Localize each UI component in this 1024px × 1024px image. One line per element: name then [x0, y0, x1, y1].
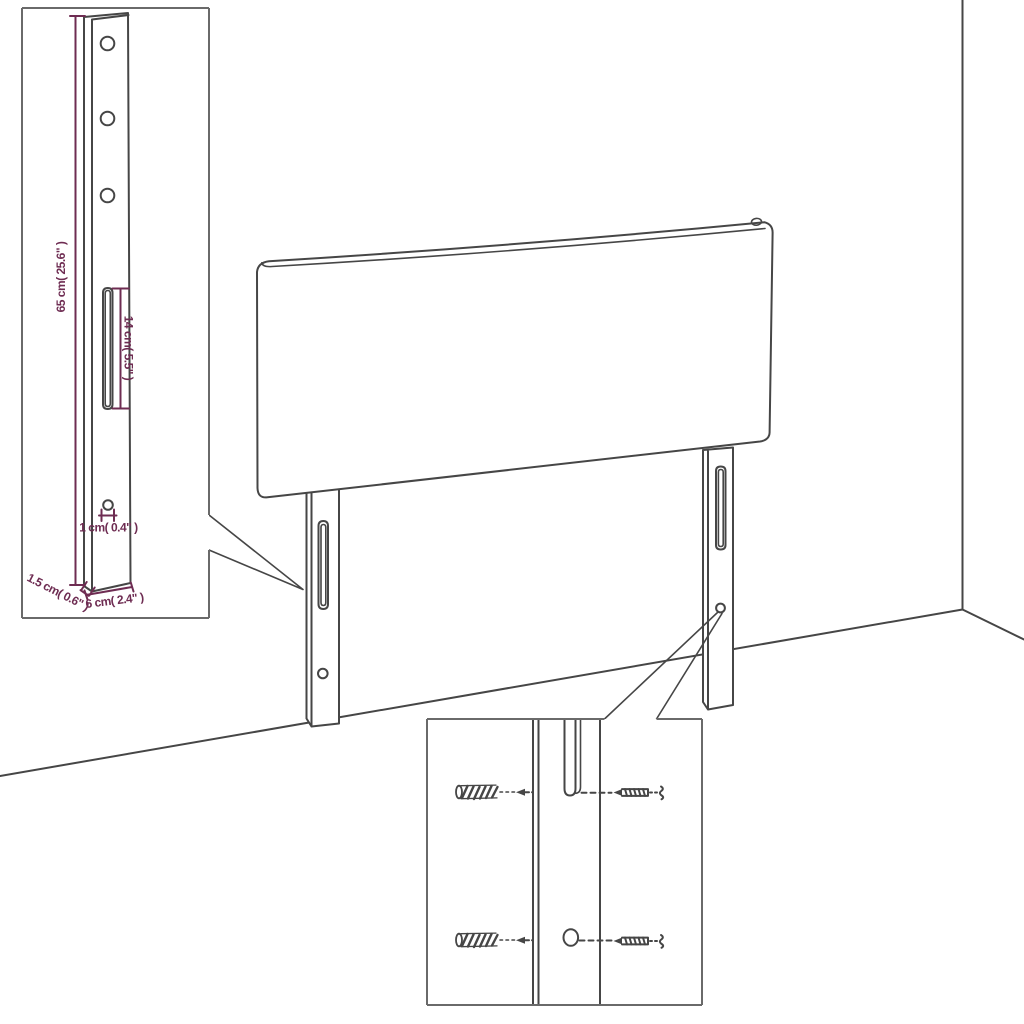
right-mounting-leg	[703, 448, 733, 710]
diagram-page: 65 cm( 25.6" ) 14 cm( 5.5" ) 1 cm( 0.4" …	[0, 0, 1024, 1024]
leg-detail-inset: 65 cm( 25.6" ) 14 cm( 5.5" ) 1 cm( 0.4" …	[22, 8, 209, 618]
headboard-panel	[257, 218, 773, 498]
callout-lines-leg-detail	[209, 515, 303, 590]
hardware-detail-inset	[427, 719, 702, 1005]
slot-label: 14 cm( 5.5" )	[122, 316, 136, 381]
height-label: 65 cm( 25.6" )	[54, 241, 68, 312]
hole-label: 1 cm( 0.4" )	[79, 521, 138, 535]
diagram-canvas: 65 cm( 25.6" ) 14 cm( 5.5" ) 1 cm( 0.4" …	[0, 0, 1024, 1024]
left-mounting-leg	[307, 483, 340, 727]
